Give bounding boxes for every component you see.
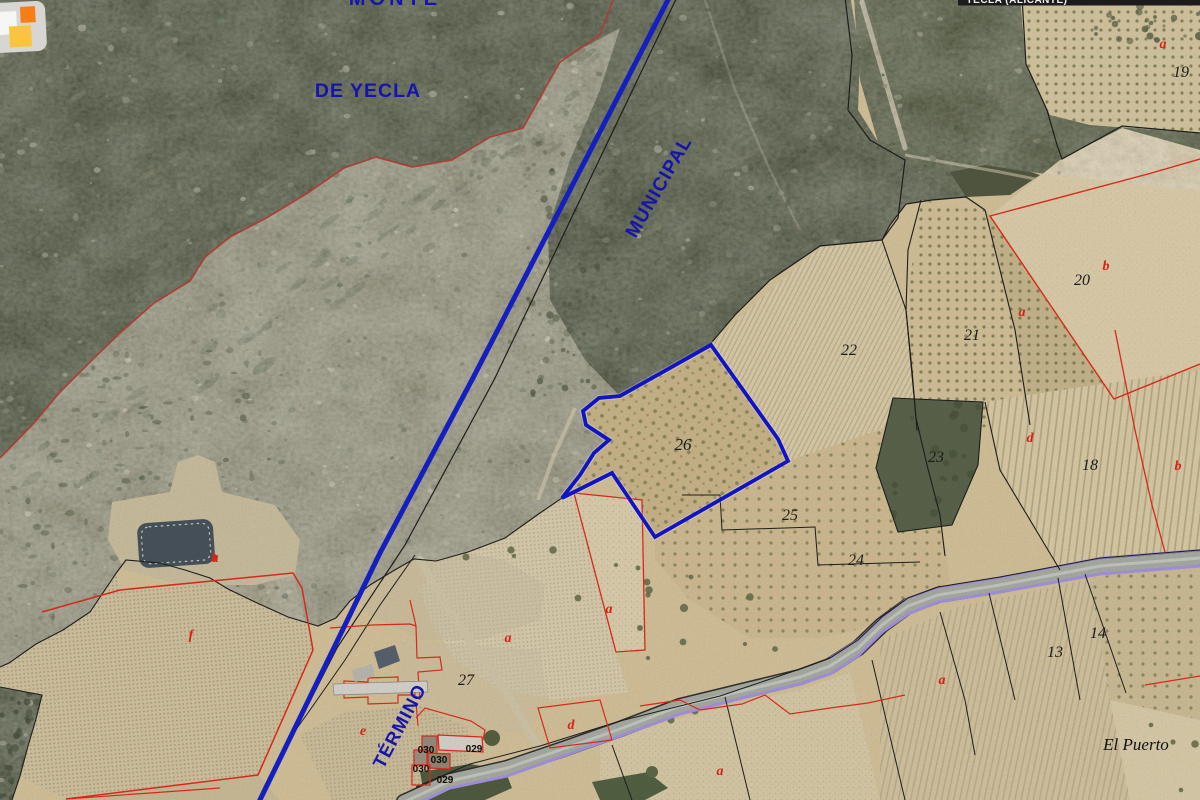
svg-text:YECLA (ALICANTE): YECLA (ALICANTE) bbox=[966, 0, 1068, 6]
